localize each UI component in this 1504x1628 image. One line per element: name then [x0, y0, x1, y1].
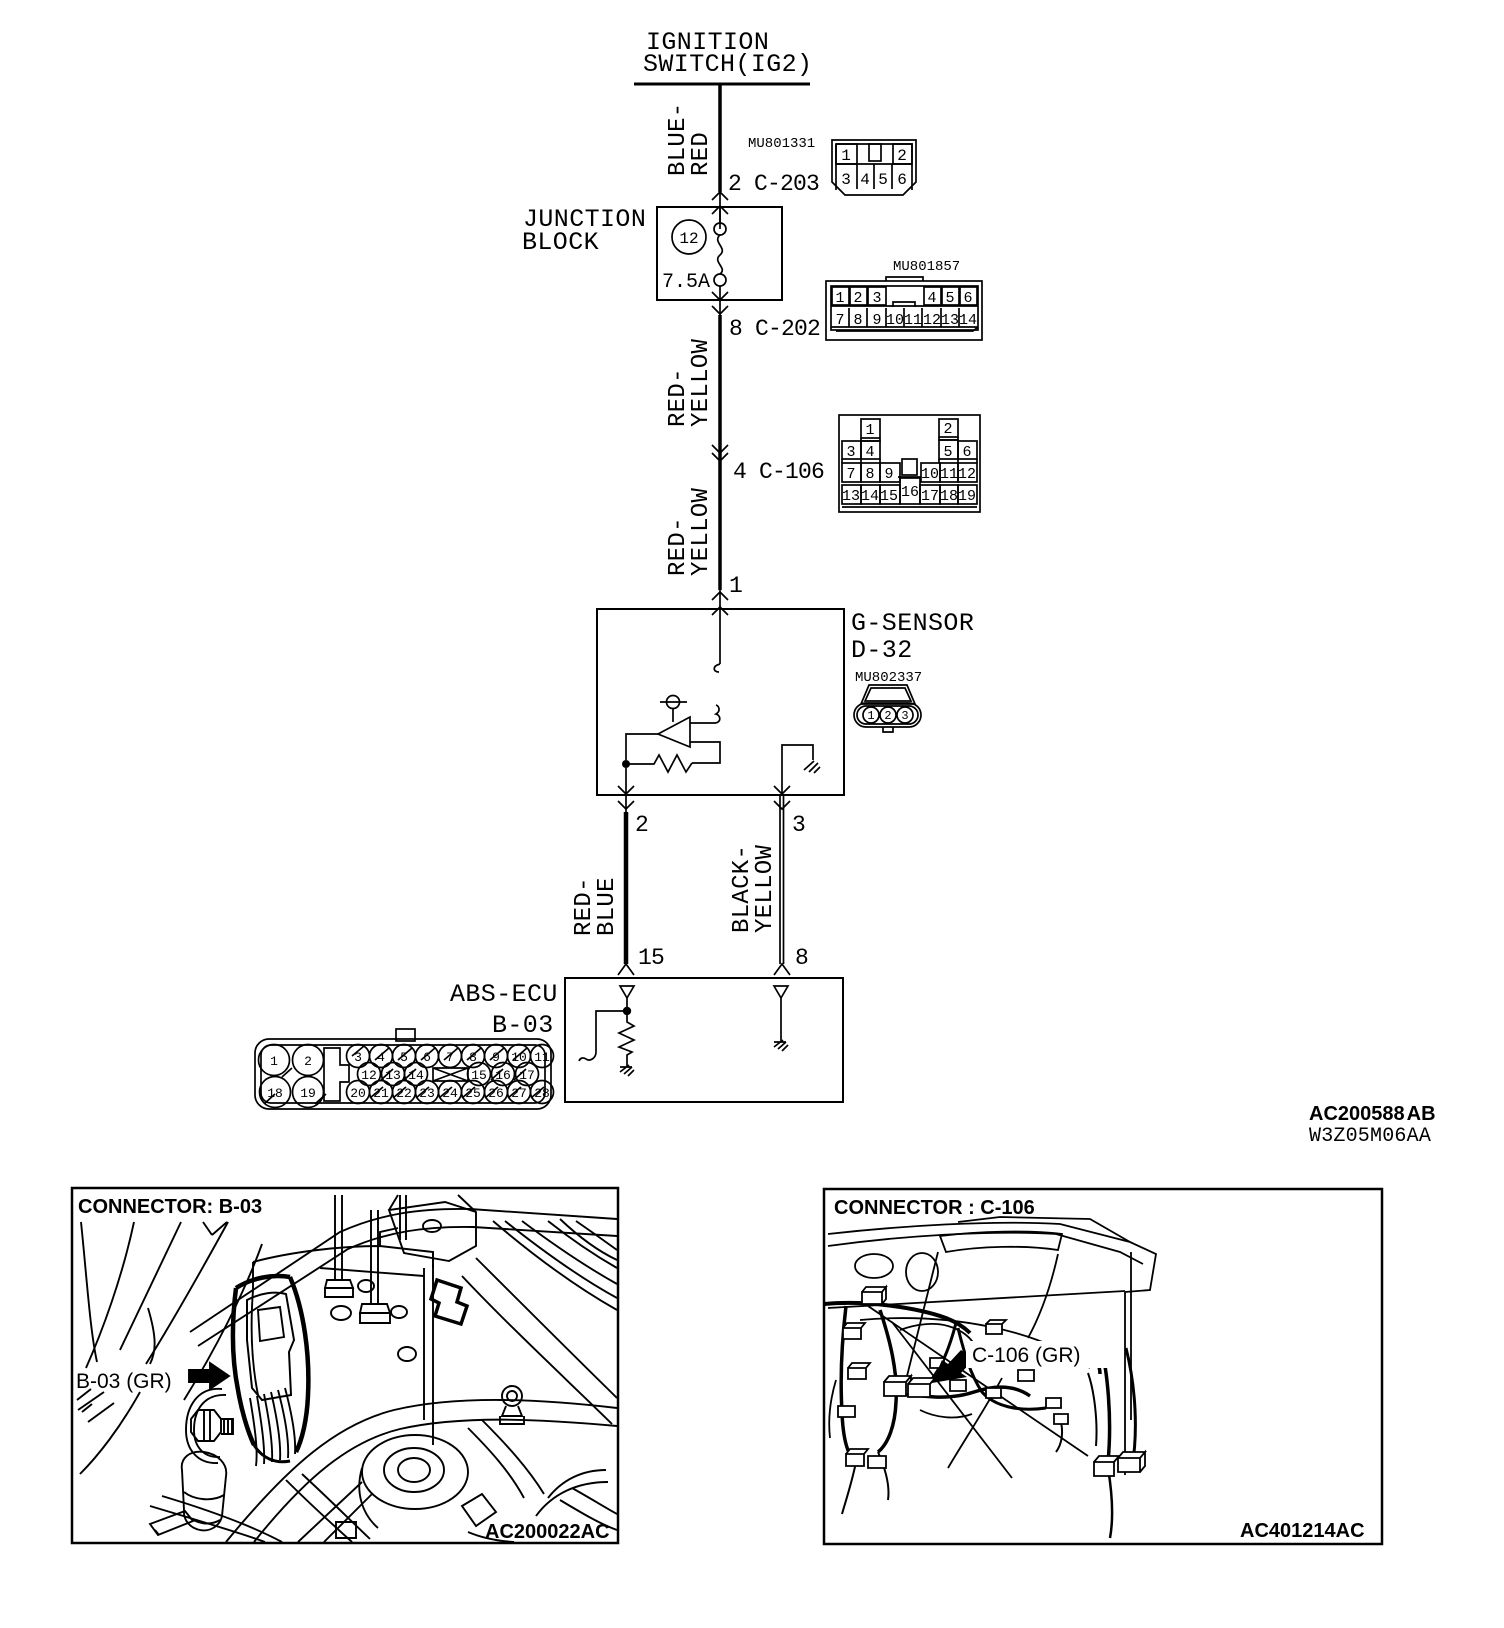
svg-text:4: 4	[377, 1050, 385, 1065]
svg-text:MU801857: MU801857	[893, 259, 960, 275]
svg-text:B-03 (GR): B-03 (GR)	[76, 1370, 172, 1393]
svg-text:6: 6	[423, 1050, 431, 1065]
svg-text:19: 19	[958, 488, 976, 505]
svg-text:25: 25	[465, 1086, 481, 1101]
svg-text:4 C-106: 4 C-106	[733, 459, 824, 485]
svg-text:3: 3	[872, 290, 881, 307]
svg-text:1: 1	[865, 422, 874, 439]
svg-text:1: 1	[867, 709, 874, 723]
svg-text:14: 14	[408, 1068, 424, 1083]
svg-text:BLOCK: BLOCK	[522, 228, 599, 257]
svg-text:24: 24	[442, 1086, 458, 1101]
svg-text:ABS-ECU: ABS-ECU	[450, 980, 558, 1009]
svg-text:11: 11	[904, 312, 922, 329]
svg-text:18: 18	[267, 1086, 283, 1101]
svg-text:3: 3	[841, 171, 851, 189]
svg-text:3: 3	[792, 812, 805, 838]
svg-text:4: 4	[860, 171, 870, 189]
svg-text:17: 17	[519, 1068, 535, 1083]
svg-text:9: 9	[884, 466, 893, 483]
svg-text:12: 12	[958, 466, 976, 483]
svg-text:CONNECTOR : C-106: CONNECTOR : C-106	[834, 1197, 1035, 1219]
svg-text:5: 5	[878, 171, 888, 189]
svg-text:3: 3	[901, 709, 908, 723]
svg-text:10: 10	[511, 1050, 527, 1065]
svg-text:16: 16	[901, 484, 919, 501]
svg-text:BLUE: BLUE	[594, 877, 621, 936]
svg-text:13: 13	[842, 488, 860, 505]
svg-text:11: 11	[534, 1050, 550, 1065]
svg-text:2: 2	[853, 290, 862, 307]
svg-text:YELLOW: YELLOW	[688, 487, 715, 576]
svg-text:7.5A: 7.5A	[662, 271, 710, 294]
svg-text:23: 23	[419, 1086, 435, 1101]
svg-text:MU801331: MU801331	[748, 136, 815, 152]
svg-text:28: 28	[534, 1086, 550, 1101]
svg-text:G-SENSOR: G-SENSOR	[851, 609, 974, 638]
svg-text:1: 1	[729, 573, 742, 599]
svg-text:8: 8	[865, 466, 874, 483]
svg-text:3: 3	[846, 444, 855, 461]
svg-text:D-32: D-32	[851, 636, 913, 665]
svg-text:CONNECTOR: B-03: CONNECTOR: B-03	[78, 1196, 262, 1218]
svg-text:8 C-202: 8 C-202	[729, 316, 820, 342]
svg-text:AC401214AC: AC401214AC	[1240, 1520, 1365, 1542]
svg-text:18: 18	[940, 488, 958, 505]
svg-text:7: 7	[446, 1050, 454, 1065]
svg-text:6: 6	[963, 290, 972, 307]
svg-text:16: 16	[495, 1068, 511, 1083]
svg-text:13: 13	[385, 1068, 401, 1083]
svg-text:2: 2	[304, 1054, 312, 1069]
svg-text:5: 5	[943, 444, 952, 461]
svg-text:1: 1	[835, 290, 844, 307]
svg-text:27: 27	[511, 1086, 527, 1101]
svg-text:15: 15	[638, 945, 664, 971]
svg-text:8: 8	[853, 312, 862, 329]
svg-text:10: 10	[921, 466, 939, 483]
svg-text:4: 4	[865, 444, 874, 461]
svg-text:AC200022AC: AC200022AC	[485, 1521, 610, 1543]
svg-text:SWITCH(IG2): SWITCH(IG2)	[643, 50, 812, 79]
svg-text:2: 2	[897, 147, 907, 165]
svg-text:5: 5	[945, 290, 954, 307]
svg-text:3: 3	[354, 1050, 362, 1065]
svg-text:YELLOW: YELLOW	[752, 844, 779, 933]
svg-text:22: 22	[396, 1086, 412, 1101]
svg-text:B-03: B-03	[492, 1011, 554, 1040]
svg-text:C-106 (GR): C-106 (GR)	[972, 1344, 1081, 1367]
svg-text:2: 2	[635, 812, 648, 838]
svg-text:13: 13	[941, 312, 959, 329]
svg-text:8: 8	[795, 945, 808, 971]
svg-text:12: 12	[923, 312, 941, 329]
svg-text:12: 12	[361, 1068, 377, 1083]
svg-text:9: 9	[872, 312, 881, 329]
svg-text:10: 10	[886, 312, 904, 329]
svg-text:26: 26	[488, 1086, 504, 1101]
svg-text:1: 1	[841, 147, 851, 165]
svg-text:1: 1	[270, 1054, 278, 1069]
svg-text:14: 14	[861, 488, 879, 505]
svg-text:2 C-203: 2 C-203	[728, 171, 819, 197]
svg-text:YELLOW: YELLOW	[688, 338, 715, 427]
svg-text:11: 11	[940, 466, 958, 483]
svg-text:21: 21	[373, 1086, 389, 1101]
svg-text:8: 8	[469, 1050, 477, 1065]
svg-text:MU802337: MU802337	[855, 670, 922, 686]
svg-text:2: 2	[943, 421, 952, 438]
svg-text:AC200588AB: AC200588AB	[1309, 1103, 1436, 1125]
svg-text:14: 14	[959, 312, 977, 329]
svg-text:5: 5	[400, 1050, 408, 1065]
svg-text:17: 17	[921, 488, 939, 505]
svg-text:6: 6	[962, 444, 971, 461]
svg-text:15: 15	[471, 1068, 487, 1083]
svg-text:7: 7	[846, 466, 855, 483]
svg-text:6: 6	[897, 171, 907, 189]
svg-text:7: 7	[835, 312, 844, 329]
svg-text:2: 2	[884, 709, 891, 723]
svg-text:9: 9	[492, 1050, 500, 1065]
svg-text:15: 15	[880, 488, 898, 505]
svg-text:4: 4	[927, 290, 936, 307]
svg-text:12: 12	[679, 230, 698, 248]
svg-text:RED: RED	[688, 132, 715, 176]
svg-text:20: 20	[350, 1086, 366, 1101]
svg-text:W3Z05M06AA: W3Z05M06AA	[1309, 1125, 1431, 1148]
svg-text:19: 19	[300, 1086, 316, 1101]
